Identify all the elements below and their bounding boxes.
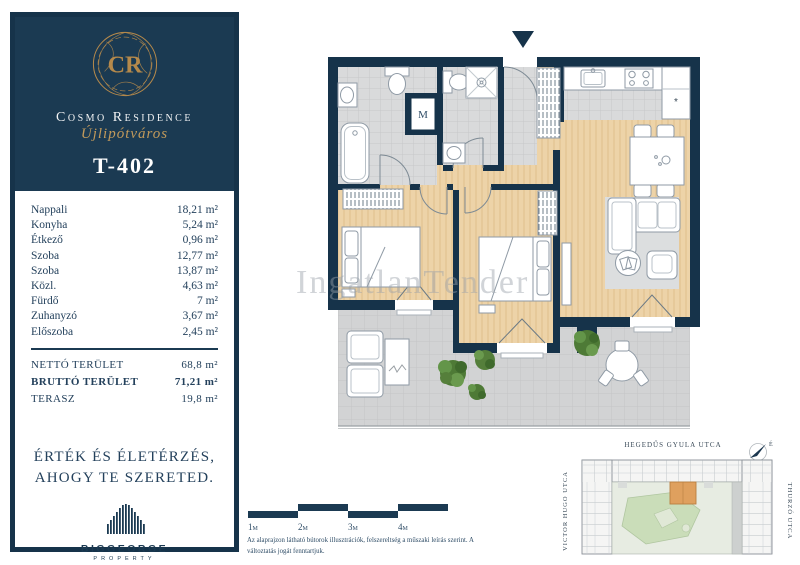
building-footprint: [582, 460, 772, 554]
entrance-arrow-icon: [512, 31, 534, 48]
room-list: Nappali18,21 m² Konyha5,24 m² Étkező0,96…: [15, 191, 234, 340]
street-label-left: VICTOR HUGO UTCA: [562, 471, 569, 551]
brand-name: Cosmo Residence: [15, 110, 234, 126]
dining-chair: [657, 184, 674, 197]
tv-stand: [562, 243, 571, 305]
scale-label-2m: 2m: [298, 522, 309, 532]
totals: NETTÓ TERÜLET68,8 m² BRUTTÓ TERÜLET71,21…: [15, 357, 234, 408]
room-area: 0,96 m²: [183, 233, 218, 248]
street-label-right: THURZÓ UTCA: [786, 483, 794, 540]
developer-sub: PROPERTY: [15, 556, 234, 562]
street-label-top: HEGEDŰS GYULA UTCA: [624, 441, 721, 449]
room-name: Nappali: [31, 203, 67, 218]
disclaimer-line1: Az alaprajzon látható bútorok illusztrác…: [247, 537, 468, 544]
developer-logo-icon: [101, 502, 149, 536]
room-name: Fürdő: [31, 294, 58, 309]
slogan-line1: ÉRTÉK ÉS ÉLETÉRZÉS,: [15, 447, 234, 468]
floor-plan: M: [325, 25, 705, 430]
compass-label: É: [769, 440, 773, 448]
slogan: ÉRTÉK ÉS ÉLETÉRZÉS, AHOGY TE SZERETED.: [15, 447, 234, 489]
developer-logo: BIGGEORGE PROPERTY: [15, 502, 234, 562]
total-row-gross: BRUTTÓ TERÜLET71,21 m²: [31, 374, 218, 391]
room-name: Közl.: [31, 279, 56, 294]
stove: [625, 69, 653, 88]
room-row: Közl.4,63 m²: [31, 279, 218, 294]
total-value: 68,8 m²: [181, 357, 218, 374]
total-label: TERASZ: [31, 391, 75, 408]
room-area: 4,63 m²: [183, 279, 218, 294]
bedroom2-bench: [479, 305, 495, 313]
room-area: 18,21 m²: [177, 203, 218, 218]
room-row: Szoba12,77 m²: [31, 249, 218, 264]
entry-wardrobe: [537, 68, 560, 138]
room-area: 12,77 m²: [177, 249, 218, 264]
divider: [31, 348, 218, 350]
room-area: 5,24 m²: [183, 218, 218, 233]
room-name: Zuhanyzó: [31, 309, 77, 324]
room-row: Étkező0,96 m²: [31, 233, 218, 248]
kitchen-floor: [564, 90, 662, 120]
terrace-chair: [615, 341, 629, 351]
brand-logo: CR: [15, 17, 234, 108]
plant-bush: [574, 330, 600, 356]
bathtub: [341, 123, 369, 183]
dining-chair: [657, 125, 674, 138]
info-panel: CR Cosmo Residence Újlipótváros T-402 Na…: [10, 12, 239, 552]
total-value: 71,21 m²: [175, 374, 218, 391]
fridge: [662, 67, 690, 119]
room-row: Nappali18,21 m²: [31, 203, 218, 218]
coffee-table: [616, 251, 641, 276]
room-row: Konyha5,24 m²: [31, 218, 218, 233]
developer-name: BIGGEORGE: [15, 543, 234, 555]
disclaimer: Az alaprajzon látható bútorok illusztrác…: [247, 536, 482, 557]
scale-label-3m: 3m: [348, 522, 359, 532]
room-area: 2,45 m²: [183, 325, 218, 340]
total-row: TERASZ19,8 m²: [31, 391, 218, 408]
utility-room-label: M: [418, 109, 428, 121]
scale-label-4m: 4m: [398, 522, 409, 532]
total-value: 19,8 m²: [181, 391, 218, 408]
room-area: 3,67 m²: [183, 309, 218, 324]
room-area: 13,87 m²: [177, 264, 218, 279]
dining-chair: [634, 184, 651, 197]
scale-bar: 1m 2m 3m 4m: [247, 500, 459, 534]
scale-label-1m: 1m: [248, 522, 259, 532]
brand-logo-icon: CR: [86, 25, 164, 103]
dining-chair: [634, 125, 651, 138]
panel-header: CR Cosmo Residence Újlipótváros T-402: [15, 17, 234, 191]
total-row: NETTÓ TERÜLET68,8 m²: [31, 357, 218, 374]
room-row: Előszoba2,45 m²: [31, 325, 218, 340]
compass: É: [750, 440, 774, 461]
room-row: Szoba13,87 m²: [31, 264, 218, 279]
room-name: Étkező: [31, 233, 63, 248]
room-name: Szoba: [31, 249, 59, 264]
room-name: Előszoba: [31, 325, 73, 340]
site-map: HEGEDŰS GYULA UTCA VICTOR HUGO UTCA THUR…: [558, 436, 798, 562]
terrace-low-table: [385, 339, 409, 385]
brand-district: Újlipótváros: [15, 126, 234, 143]
slogan-line2: AHOGY TE SZERETED.: [15, 468, 234, 489]
bedroom2-wardrobe: [538, 191, 557, 235]
unit-id: T-402: [15, 153, 234, 179]
bedroom1-wardrobe: [343, 189, 403, 209]
room-row: Fürdő7 m²: [31, 294, 218, 309]
bedroom1-bench: [342, 289, 355, 297]
room-name: Szoba: [31, 264, 59, 279]
room-row: Zuhanyzó3,67 m²: [31, 309, 218, 324]
total-label: BRUTTÓ TERÜLET: [31, 374, 138, 391]
room-area: 7 m²: [197, 294, 218, 309]
fridge-symbol: *: [674, 97, 678, 108]
room-name: Konyha: [31, 218, 67, 233]
dining-table: [630, 137, 684, 185]
total-label: NETTÓ TERÜLET: [31, 357, 124, 374]
brand-monogram: CR: [107, 51, 142, 78]
